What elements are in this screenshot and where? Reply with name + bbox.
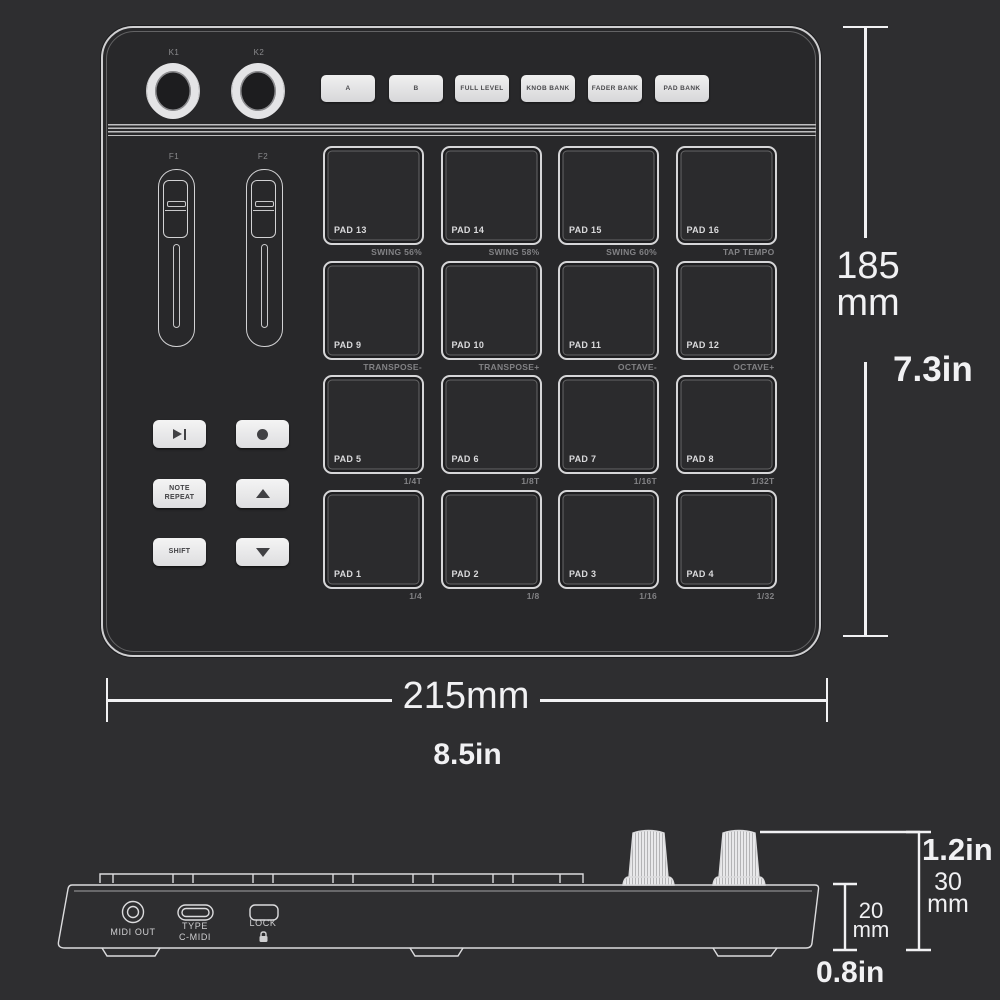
fader-grip [255, 201, 274, 207]
padlock-icon [258, 931, 269, 943]
pad-label: PAD 1 [334, 569, 361, 579]
pad-label: PAD 7 [569, 454, 596, 464]
fader-f2 [246, 169, 283, 347]
pad-cell: PAD 11OCTAVE- [558, 261, 659, 360]
midi-out-label: MIDI OUT [104, 927, 162, 938]
fader-slot [261, 244, 268, 328]
fader-grip [167, 201, 186, 207]
pad-cell: PAD 13SWING 56% [323, 146, 424, 245]
usb-c-port [178, 905, 213, 920]
pad-10: PAD 10 [441, 261, 542, 360]
width-dim-cap-right [826, 678, 828, 722]
pad-cell: PAD 71/16T [558, 375, 659, 474]
record-button [236, 420, 289, 448]
play-pause-button [153, 420, 206, 448]
pad-cell: PAD 21/8 [441, 490, 542, 589]
button-full-level: FULL LEVEL [455, 75, 509, 102]
pad-label: PAD 14 [452, 225, 485, 235]
fader-handle [163, 180, 188, 238]
lock-label: LOCK [240, 918, 286, 929]
note-repeat-label: NOTE REPEAT [160, 485, 200, 502]
knob-k2-label: K2 [250, 48, 268, 57]
pad-label: PAD 4 [687, 569, 714, 579]
pad-secondary-label: 1/4T [404, 476, 422, 486]
fader-f2-label: F2 [254, 152, 272, 161]
button-a: A [321, 75, 375, 102]
pad-cell: PAD 14SWING 58% [441, 146, 542, 245]
pad-label: PAD 13 [334, 225, 367, 235]
controller-top-view: K1 K2 A B FULL LEVEL KNOB BANK FADER BAN… [101, 26, 821, 657]
pad-cell: PAD 41/32 [676, 490, 777, 589]
pad-label: PAD 5 [334, 454, 361, 464]
pad-label: PAD 8 [687, 454, 714, 464]
pause-bar-icon [184, 429, 187, 440]
knob-k2 [231, 64, 285, 118]
pad-4: PAD 4 [676, 490, 777, 589]
pad-8: PAD 8 [676, 375, 777, 474]
button-pad-bank: PAD BANK [655, 75, 709, 102]
pad-label: PAD 15 [569, 225, 602, 235]
body-height-metric-label: 20 mm [845, 901, 897, 939]
pad-label: PAD 9 [334, 340, 361, 350]
height-dim-line-lower [864, 362, 867, 635]
record-icon [257, 429, 268, 440]
fader-f1 [158, 169, 195, 347]
pad-3: PAD 3 [558, 490, 659, 589]
pad-secondary-label: 1/8 [527, 591, 540, 601]
pad-cell: PAD 81/32T [676, 375, 777, 474]
pad-6: PAD 6 [441, 375, 542, 474]
product-dimension-diagram: K1 K2 A B FULL LEVEL KNOB BANK FADER BAN… [0, 0, 1000, 1000]
width-imperial-label: 8.5in [425, 738, 510, 772]
pad-cell: PAD 61/8T [441, 375, 542, 474]
knob-k1-label: K1 [165, 48, 183, 57]
pad-14: PAD 14 [441, 146, 542, 245]
fader-grip [165, 210, 186, 211]
pad-grid: PAD 13SWING 56% PAD 14SWING 58% PAD 15SW… [323, 146, 777, 589]
knob-k1 [146, 64, 200, 118]
shift-label: SHIFT [169, 548, 191, 557]
note-repeat-button: NOTE REPEAT [153, 479, 206, 508]
fader-slot [173, 244, 180, 328]
pad-label: PAD 2 [452, 569, 479, 579]
up-button [236, 479, 289, 508]
pad-1: PAD 1 [323, 490, 424, 589]
pad-9: PAD 9 [323, 261, 424, 360]
knob-icon [232, 63, 284, 119]
down-button [236, 538, 289, 566]
pad-cell: PAD 11/4 [323, 490, 424, 589]
pad-secondary-label: 1/16T [634, 476, 657, 486]
pad-13: PAD 13 [323, 146, 424, 245]
pad-label: PAD 6 [452, 454, 479, 464]
pad-secondary-label: TAP TEMPO [723, 247, 775, 257]
pad-11: PAD 11 [558, 261, 659, 360]
pad-cell: PAD 9TRANSPOSE- [323, 261, 424, 360]
height-metric-label: 185 mm [830, 248, 906, 322]
fader-grip [253, 210, 274, 211]
height-dim-line-upper [864, 27, 867, 238]
shift-button: SHIFT [153, 538, 206, 566]
pad-secondary-label: TRANSPOSE- [363, 362, 422, 372]
play-icon [173, 429, 182, 439]
width-dim-line-left [107, 699, 392, 702]
pad-7: PAD 7 [558, 375, 659, 474]
knob-icon [147, 63, 199, 119]
pad-cell: PAD 16TAP TEMPO [676, 146, 777, 245]
pad-secondary-label: 1/8T [521, 476, 539, 486]
rubber-foot [713, 948, 777, 956]
button-fader-bank: FADER BANK [588, 75, 642, 102]
pad-5: PAD 5 [323, 375, 424, 474]
pad-secondary-label: 1/4 [409, 591, 422, 601]
pad-15: PAD 15 [558, 146, 659, 245]
up-arrow-icon [256, 489, 270, 498]
rubber-foot [410, 948, 463, 956]
fader-f1-label: F1 [165, 152, 183, 161]
pad-cell: PAD 10TRANSPOSE+ [441, 261, 542, 360]
pad-cell: PAD 31/16 [558, 490, 659, 589]
rubber-foot [102, 948, 160, 956]
total-height-imperial-label: 1.2in [922, 832, 993, 868]
width-dim-line-right [540, 699, 827, 702]
pad-secondary-label: OCTAVE- [618, 362, 657, 372]
height-imperial-label: 7.3in [893, 350, 973, 390]
width-metric-label: 215mm [396, 678, 536, 715]
midi-out-jack [123, 902, 144, 923]
pad-cell: PAD 12OCTAVE+ [676, 261, 777, 360]
pad-label: PAD 10 [452, 340, 485, 350]
pad-secondary-label: TRANSPOSE+ [479, 362, 540, 372]
usb-c-label: TYPE C-MIDI [167, 921, 223, 942]
down-arrow-icon [256, 548, 270, 557]
pad-12: PAD 12 [676, 261, 777, 360]
pad-cell: PAD 15SWING 60% [558, 146, 659, 245]
body-height-imperial-label: 0.8in [816, 956, 884, 990]
pad-secondary-label: 1/32 [757, 591, 775, 601]
pad-secondary-label: OCTAVE+ [733, 362, 774, 372]
button-b: B [389, 75, 443, 102]
pad-secondary-label: SWING 58% [489, 247, 540, 257]
pad-secondary-label: SWING 56% [371, 247, 422, 257]
pad-cell: PAD 51/4T [323, 375, 424, 474]
pad-secondary-label: 1/16 [639, 591, 657, 601]
fader-handle [251, 180, 276, 238]
pad-label: PAD 11 [569, 340, 601, 350]
pad-label: PAD 12 [687, 340, 720, 350]
panel-divider [108, 124, 816, 137]
pad-2: PAD 2 [441, 490, 542, 589]
pad-secondary-label: SWING 60% [606, 247, 657, 257]
button-knob-bank: KNOB BANK [521, 75, 575, 102]
pad-label: PAD 3 [569, 569, 596, 579]
pad-secondary-label: 1/32T [751, 476, 774, 486]
pad-label: PAD 16 [687, 225, 720, 235]
pad-16: PAD 16 [676, 146, 777, 245]
height-dim-cap-bottom [843, 635, 888, 637]
total-height-metric-label: 30 mm [923, 871, 973, 915]
